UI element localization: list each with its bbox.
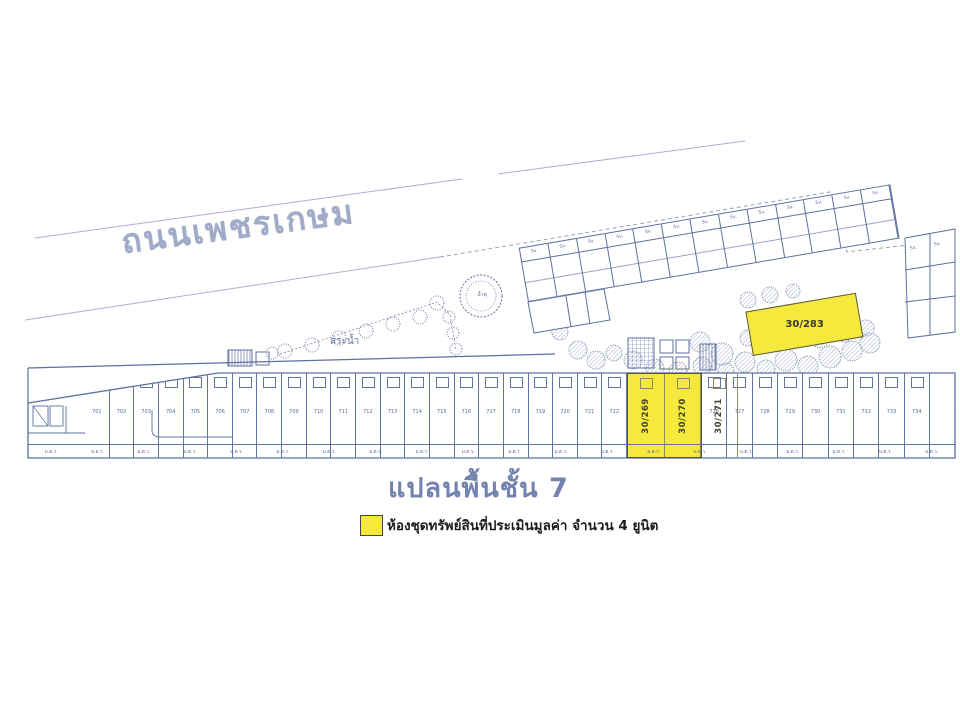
unit-number: 703 <box>134 409 158 415</box>
balcony-label: ม.ต.ว. <box>230 448 243 455</box>
balcony-label: ม.ต.ว. <box>91 448 104 455</box>
wing-sv-label: Sv. <box>833 193 861 203</box>
legend-text: ห้องชุดทรัพย์สินที่ประเมินมูลค่า จำนวน 4… <box>387 514 658 536</box>
legend-highlight-swatch <box>360 515 383 536</box>
unit-number: 719 <box>529 409 553 415</box>
stair-structure <box>228 350 269 366</box>
balcony-label: ม.ต.ว. <box>138 448 151 455</box>
balcony-label: ม.ต.ว. <box>508 448 521 455</box>
wing-sv-label: Sv. <box>862 189 890 199</box>
unit-number: 710 <box>307 409 331 415</box>
balcony-label: ม.ต.ว. <box>879 448 892 455</box>
balcony-label: ม.ต.ว. <box>45 448 58 455</box>
wing-sv-label: Sv. <box>663 223 691 233</box>
wing-sv-label: Sv. <box>719 213 747 223</box>
unit-number: 716 <box>455 409 479 415</box>
unit-number: 708 <box>257 409 281 415</box>
floor-plan-title: แปลนพื้นชั้น 7 <box>388 466 569 509</box>
wing-sv-label: Sv. <box>520 247 548 257</box>
balcony-label: ม.ต.ว. <box>323 448 336 455</box>
unit-number: 711 <box>331 409 355 415</box>
unit-number: 729 <box>778 409 802 415</box>
balcony-label: ม.ต.ว. <box>416 448 429 455</box>
unit-number: 731 <box>829 409 853 415</box>
fountain-label: น้ำพุ <box>470 291 494 299</box>
unit-number: 718 <box>504 409 528 415</box>
legend: ห้องชุดทรัพย์สินที่ประเมินมูลค่า จำนวน 4… <box>360 514 658 536</box>
balcony-label: ม.ต.ว. <box>694 448 707 455</box>
unit-number: 707 <box>233 409 257 415</box>
unit-number: 705 <box>184 409 208 415</box>
wing-sv-label: Sv. <box>805 198 833 208</box>
unit-number: 709 <box>282 409 306 415</box>
unit-number: 702 <box>110 409 134 415</box>
unit-number: 717 <box>479 409 503 415</box>
balcony-label: ม.ต.ว. <box>184 448 197 455</box>
unit-number: 714 <box>405 409 429 415</box>
wing-sv-label: Sv. <box>748 208 776 218</box>
unit-number: 721 <box>578 409 602 415</box>
unit-number: 701 <box>85 409 109 415</box>
highlighted-unit-label: 30/269 <box>641 398 651 434</box>
unit-number: 706 <box>208 409 232 415</box>
unit-30-283-label: 30/283 <box>785 319 823 330</box>
plan-line-drawing <box>0 0 960 720</box>
unit-number: 732 <box>854 409 878 415</box>
pond-label: สระน้ำ <box>330 334 359 349</box>
unit-number: 715 <box>430 409 454 415</box>
bottom-row-building: 701 702 703 704 705 706 707 708 <box>28 373 955 458</box>
balcony-label: ม.ต.ว. <box>601 448 614 455</box>
wing-sv-label: Sv. <box>691 218 719 228</box>
wing-sv-label: Sv. <box>776 203 804 213</box>
balcony-label: ม.ต.ว. <box>277 448 290 455</box>
unit-number: 720 <box>553 409 577 415</box>
balcony-label: ม.ต.ว. <box>647 448 660 455</box>
unit-number: 704 <box>159 409 183 415</box>
unit-number: 722 <box>602 409 626 415</box>
pond-trees <box>266 296 462 359</box>
balcony-strip: ม.ต.ว.ม.ต.ว.ม.ต.ว.ม.ต.ว.ม.ต.ว.ม.ต.ว.ม.ต.… <box>28 444 955 458</box>
highlighted-unit-label: 30/270 <box>678 398 688 434</box>
balcony-label: ม.ต.ว. <box>740 448 753 455</box>
unit-number: 728 <box>753 409 777 415</box>
unit-number: 734 <box>905 409 929 415</box>
scanned-floorplan-page: ถนนเพชรเกษม สระน้ำ น้ำพุ Sv. Sv. Sv. Sv.… <box>0 0 960 720</box>
unit-number: 733 <box>879 409 903 415</box>
unit-number: 713 <box>381 409 405 415</box>
balcony-label: ม.ต.ว. <box>833 448 846 455</box>
wing-sv-label: Sv. <box>634 227 662 237</box>
balcony-label: ม.ต.ว. <box>925 448 938 455</box>
balcony-label: ม.ต.ว. <box>369 448 382 455</box>
unit-number: 712 <box>356 409 380 415</box>
wing-sv-label: Sv. <box>549 242 577 252</box>
balcony-label: ม.ต.ว. <box>555 448 568 455</box>
wing-sv-label: Sv. <box>577 237 605 247</box>
wing-sv-label: Sv. <box>606 232 634 242</box>
balcony-label: ม.ต.ว. <box>462 448 475 455</box>
highlighted-unit-label: 30/271 <box>714 398 724 434</box>
unit-number: 730 <box>803 409 827 415</box>
balcony-label: ม.ต.ว. <box>786 448 799 455</box>
